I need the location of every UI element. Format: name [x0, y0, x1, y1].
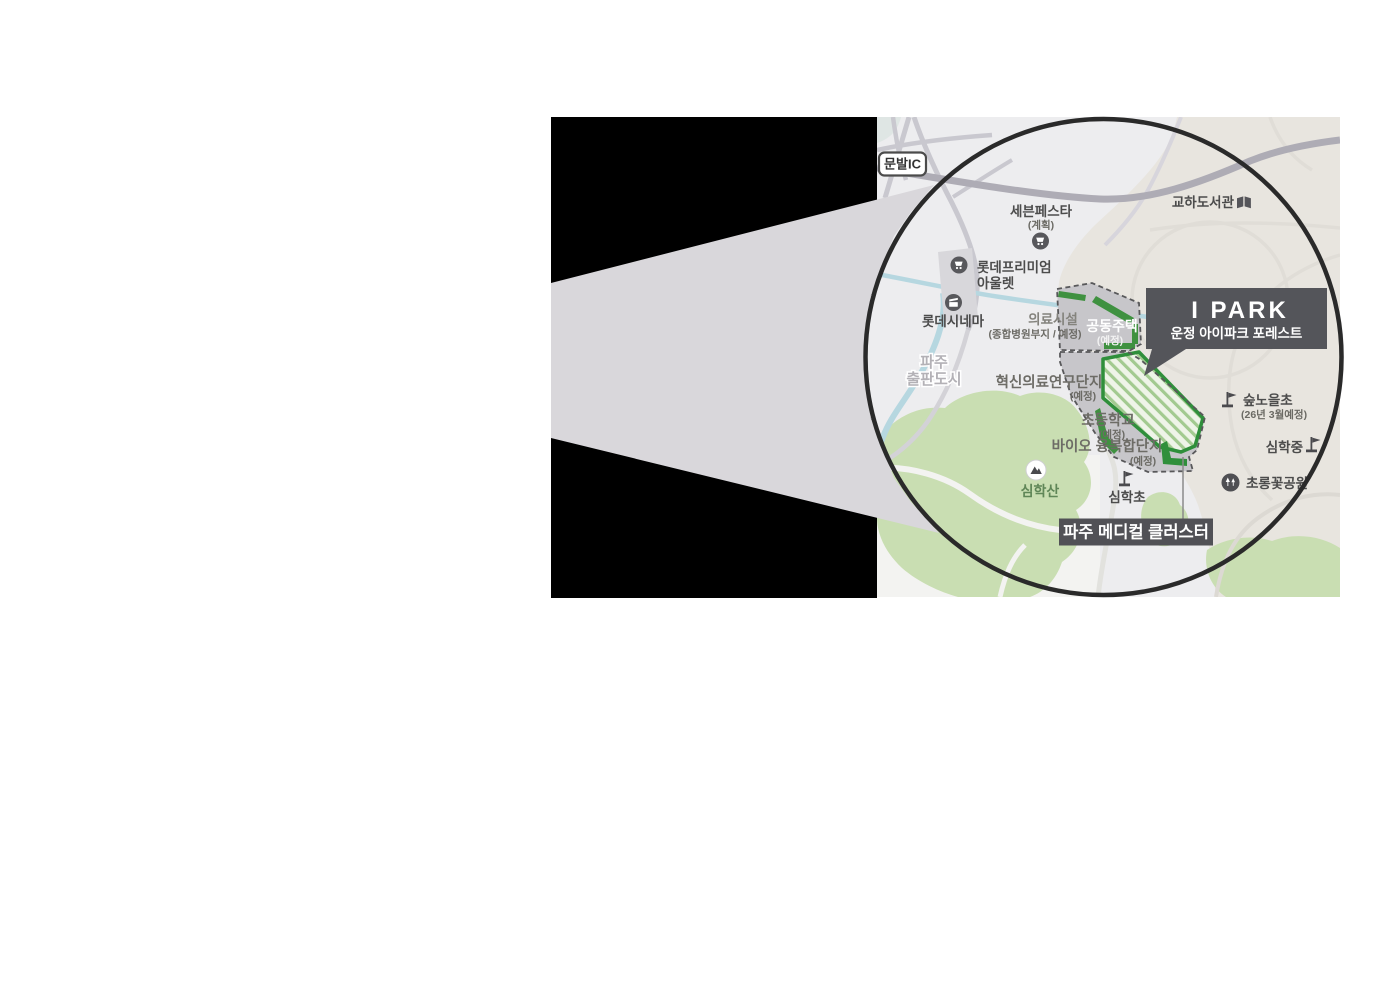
- label-lotte-cinema: 롯데시네마: [922, 314, 985, 329]
- label-simhaksan: 심학산: [1021, 483, 1060, 499]
- munbal-ic-text: 문발IC: [884, 157, 922, 172]
- label-medical-facility-sub: (종합병원부지 / 예정): [988, 328, 1081, 341]
- label-research-complex: 혁신의료연구단지: [996, 373, 1103, 391]
- medical-cluster-text: 파주 메디컬 클러스터: [1063, 523, 1209, 542]
- label-seven-festa: 세븐페스타: [1010, 204, 1073, 219]
- promo-map-page: 세븐페스타 (계획) 교하도서관 롯데프리미엄 아울렛 롯데시네마 파주 출판도…: [0, 0, 1400, 990]
- location-map-graphic: 세븐페스타 (계획) 교하도서관 롯데프리미엄 아울렛 롯데시네마 파주 출판도…: [0, 0, 1400, 990]
- label-research-complex-sub: (예정): [1070, 390, 1096, 403]
- clapperboard-icon-cinema: [945, 294, 962, 311]
- label-lotte-premium-2: 아울렛: [977, 275, 1014, 291]
- munbal-ic-badge: 문발IC: [879, 153, 926, 176]
- ipark-badge-subtitle: 운정 아이파크 포레스트: [1171, 325, 1303, 341]
- label-bio-complex-sub: (예정): [1130, 455, 1156, 468]
- label-paju-2: 출판도시: [906, 371, 961, 388]
- cart-icon-outlet: [951, 257, 968, 274]
- mountain-icon-simhaksan: [1026, 460, 1046, 480]
- cart-icon-sevenfesta: [1032, 233, 1049, 250]
- label-lotte-premium-1: 롯데프리미엄: [977, 260, 1052, 275]
- label-simhakcho: 심학초: [1108, 490, 1146, 505]
- label-housing: 공동주택: [1086, 318, 1138, 334]
- park-trees-icon-chorong: [1222, 474, 1240, 492]
- label-simhakjung: 심학중: [1266, 440, 1303, 455]
- medical-cluster-badge: 파주 메디컬 클러스터: [1059, 519, 1213, 546]
- label-bio-complex: 바이오 융복합단지: [1052, 438, 1163, 455]
- label-supnoeul: 숲노을초: [1243, 393, 1293, 408]
- label-housing-sub: (예정): [1097, 334, 1123, 347]
- ipark-badge-title: I PARK: [1191, 297, 1289, 324]
- label-supnoeul-sub: (26년 3월예정): [1241, 408, 1307, 421]
- label-medical-facility: 의료시설: [1028, 311, 1078, 327]
- label-chorong-park: 초롱꽃공원: [1246, 476, 1308, 491]
- label-gyoha-library: 교하도서관: [1172, 194, 1235, 210]
- label-seven-festa-sub: (계획): [1028, 219, 1054, 232]
- label-paju-1: 파주: [920, 354, 948, 371]
- label-elementary: 초등학교: [1081, 412, 1134, 429]
